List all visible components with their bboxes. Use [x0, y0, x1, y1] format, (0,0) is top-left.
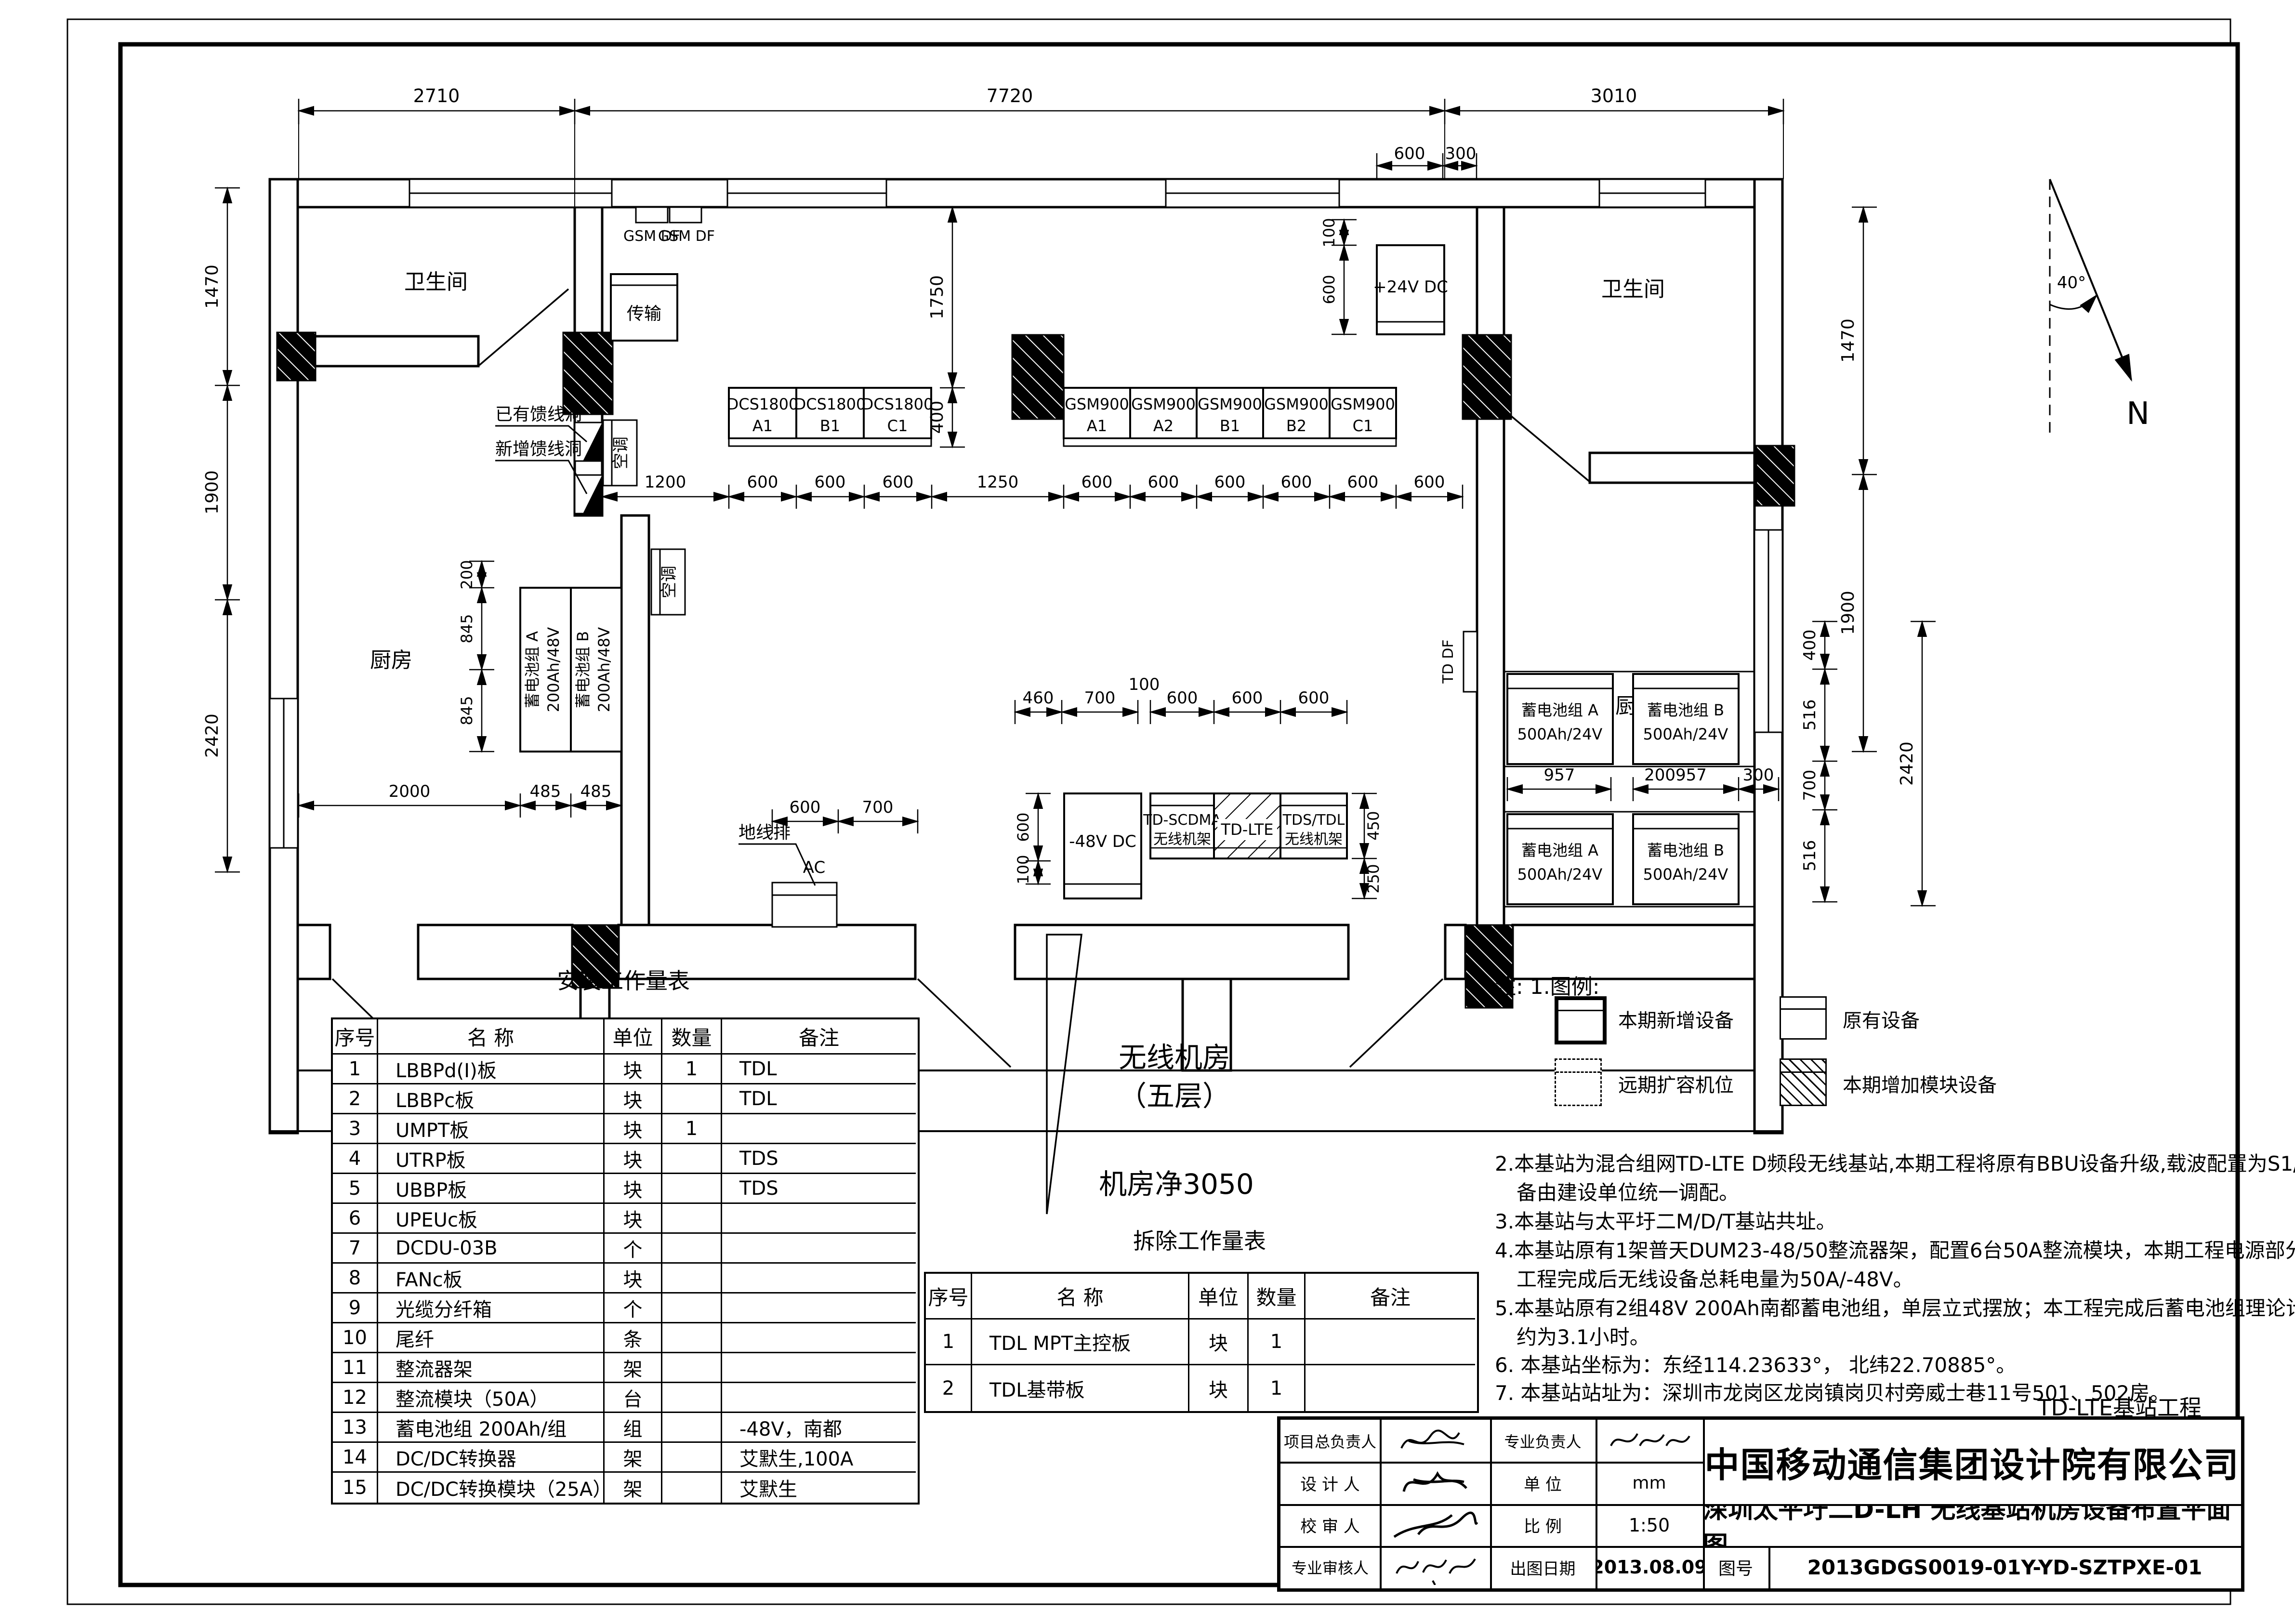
svg-text:600: 600 [1347, 473, 1379, 492]
cell [722, 1323, 916, 1353]
cell: 架 [605, 1443, 662, 1473]
install-table: 序号 名 称 单位 数量 备注 1LBBPd(I)板块1TDL 2LBBPc板块… [331, 1017, 920, 1505]
svg-text:516: 516 [1800, 840, 1820, 871]
cell: 1 [662, 1114, 722, 1144]
svg-text:600: 600 [815, 473, 846, 492]
svg-text:C1: C1 [1353, 417, 1373, 435]
svg-text:600: 600 [1320, 275, 1338, 304]
tb-value-figure-no: 2013GDGS0019-01Y-YD-SZTPXE-01 [1768, 1546, 2241, 1588]
svg-text:7720: 7720 [987, 85, 1033, 106]
svg-text:1470: 1470 [202, 264, 222, 309]
signature-discipline-lead [1596, 1420, 1703, 1462]
cell [662, 1383, 722, 1413]
svg-text:蓄电池组 B: 蓄电池组 B [1647, 841, 1724, 859]
svg-text:250: 250 [1364, 864, 1383, 893]
svg-text:1750: 1750 [927, 275, 947, 319]
svg-text:300: 300 [1743, 766, 1774, 785]
room-bath-right: 卫生间 [1601, 277, 1665, 302]
svg-text:3010: 3010 [1591, 85, 1637, 106]
svg-text:C1: C1 [887, 417, 908, 435]
removal-table: 序号 名 称 单位 数量 备注 1TDL MPT主控板块1 2TDL基带板块1 [924, 1272, 1479, 1413]
svg-text:500Ah/24V: 500Ah/24V [1517, 865, 1603, 884]
machine-room-name: 无线机房 [1119, 1041, 1230, 1074]
cell: 12 [333, 1383, 378, 1413]
rack-tdscdma-line2: 无线机架 [1153, 831, 1211, 848]
cell [662, 1204, 722, 1234]
rack-tdstdl-line2: 无线机架 [1285, 831, 1343, 848]
signature-designer [1380, 1462, 1490, 1504]
svg-text:B2: B2 [1286, 417, 1306, 435]
svg-text:600: 600 [1281, 473, 1312, 492]
drawing-sheet: 已有馈线洞 新增馈线洞 卫生间 厨房 卫生间 厨房 无线机房 （五层） 机房净3… [0, 0, 2295, 1622]
legend-label-future-expansion: 远期扩容机位 [1618, 1069, 1734, 1097]
svg-text:100: 100 [1129, 675, 1160, 694]
cell: 1 [662, 1055, 722, 1084]
svg-text:500Ah/24V: 500Ah/24V [1643, 725, 1728, 743]
svg-text:A1: A1 [1087, 417, 1107, 435]
svg-text:DCS1800: DCS1800 [727, 395, 799, 413]
cell [662, 1084, 722, 1114]
tb-label-figure-no: 图号 [1703, 1546, 1768, 1588]
cell [722, 1114, 916, 1144]
cell: 3 [333, 1114, 378, 1144]
svg-text:600: 600 [1082, 473, 1113, 492]
svg-text:600: 600 [1232, 688, 1263, 708]
svg-text:1470: 1470 [1838, 318, 1858, 363]
north-angle: 40° [2057, 273, 2086, 292]
cell [662, 1264, 722, 1294]
svg-text:1900: 1900 [1838, 591, 1858, 635]
cell [662, 1413, 722, 1443]
svg-text:600: 600 [1014, 812, 1032, 842]
svg-text:200Ah/48V: 200Ah/48V [544, 627, 563, 713]
cell: 艾默生 [722, 1473, 916, 1503]
cell: TDS [722, 1144, 916, 1174]
svg-text:DCS1800: DCS1800 [862, 395, 934, 413]
svg-text:蓄电池组 B: 蓄电池组 B [574, 631, 592, 708]
legend-label-new-equipment: 本期新增设备 [1618, 1005, 1734, 1033]
svg-text:485: 485 [580, 782, 612, 801]
cell: FANc板 [378, 1264, 605, 1294]
svg-text:460: 460 [1023, 688, 1054, 708]
cell: 9 [333, 1294, 378, 1323]
svg-text:600: 600 [1167, 688, 1198, 708]
gsm-df-label-2: GSM DF [658, 228, 715, 245]
ac-label-1: 空调 [611, 436, 631, 469]
cell: TDL [722, 1084, 916, 1114]
tb-label-discipline-lead: 专业负责人 [1490, 1420, 1596, 1462]
svg-text:450: 450 [1364, 811, 1383, 840]
svg-text:400: 400 [927, 401, 947, 434]
svg-text:600: 600 [1414, 473, 1445, 492]
cell [662, 1144, 722, 1174]
signature-project-lead [1380, 1420, 1490, 1462]
cell: 块 [605, 1264, 662, 1294]
cell: 个 [605, 1234, 662, 1264]
svg-text:485: 485 [530, 782, 561, 801]
cell: 块 [1189, 1365, 1249, 1411]
cell: UBBP板 [378, 1174, 605, 1204]
cell: 10 [333, 1323, 378, 1353]
svg-text:TD DF: TD DF [1440, 639, 1457, 684]
cell: 尾纤 [378, 1323, 605, 1353]
transmission-box: 传输 [611, 274, 677, 341]
cell: 1 [1249, 1320, 1306, 1365]
svg-text:2710: 2710 [413, 85, 460, 106]
cell: 块 [605, 1204, 662, 1234]
cell: -48V，南都 [722, 1413, 916, 1443]
install-header-name: 名 称 [378, 1019, 605, 1055]
svg-text:700: 700 [862, 798, 894, 817]
svg-text:957: 957 [1544, 766, 1575, 785]
svg-text:B1: B1 [820, 417, 840, 435]
svg-text:600: 600 [1214, 473, 1246, 492]
cell: 块 [1189, 1320, 1249, 1365]
ac-label-2: 空调 [659, 566, 679, 598]
svg-text:1200: 1200 [645, 473, 686, 492]
svg-text:1900: 1900 [202, 470, 222, 515]
cell: 8 [333, 1264, 378, 1294]
company-name: 中国移动通信集团设计院有限公司 [1703, 1420, 2241, 1504]
cell: 架 [605, 1473, 662, 1503]
svg-text:845: 845 [458, 696, 476, 725]
machine-room-net-size: 机房净3050 [1099, 1168, 1254, 1201]
svg-text:GSM900: GSM900 [1331, 395, 1395, 413]
cell: 架 [605, 1353, 662, 1383]
svg-text:2420: 2420 [1897, 741, 1917, 786]
cell: 蓄电池组 200Ah/组 [378, 1413, 605, 1443]
svg-text:蓄电池组 B: 蓄电池组 B [1647, 701, 1724, 719]
cell: 组 [605, 1413, 662, 1443]
rack-tdscdma-line1: TD-SCDMA [1143, 812, 1221, 829]
cell: TDL基带板 [972, 1365, 1189, 1411]
legend-label-added-module: 本期增加模块设备 [1843, 1069, 1997, 1097]
cell: 整流器架 [378, 1353, 605, 1383]
dc48-box: -48V DC [1064, 793, 1141, 898]
svg-text:300: 300 [1445, 144, 1477, 163]
svg-text:516: 516 [1800, 700, 1820, 731]
cell: TDL [722, 1055, 916, 1084]
rack-tdlte: TD-LTE [1221, 820, 1274, 839]
removal-header-seq: 序号 [926, 1274, 972, 1320]
svg-text:GSM900: GSM900 [1065, 395, 1129, 413]
dc24-box: +24V DC [1373, 245, 1448, 334]
legend-icon-future-expansion [1555, 1058, 1602, 1106]
new-feeder-hole-label: 新增馈线洞 [495, 439, 582, 459]
note-5-line2: 约为3.1小时。 [1517, 1321, 1650, 1350]
svg-text:500Ah/24V: 500Ah/24V [1643, 865, 1728, 884]
tb-label-scale: 比 例 [1490, 1504, 1596, 1546]
cell: 块 [605, 1084, 662, 1114]
cell: 块 [605, 1114, 662, 1144]
tb-value-unit: mm [1596, 1462, 1703, 1504]
svg-text:600: 600 [1298, 688, 1330, 708]
cell [662, 1174, 722, 1204]
svg-text:蓄电池组 A: 蓄电池组 A [523, 631, 541, 708]
tb-value-issue-date: 2013.08.09 [1596, 1546, 1703, 1588]
note-6: 6. 本基站坐标为：东经114.23633°， 北纬22.70885°。 [1495, 1349, 2016, 1378]
removal-table-title: 拆除工作量表 [924, 1224, 1475, 1255]
cell: DC/DC转换器 [378, 1443, 605, 1473]
svg-text:600: 600 [1394, 144, 1425, 163]
svg-text:1250: 1250 [977, 473, 1019, 492]
removal-header-unit: 单位 [1189, 1274, 1249, 1320]
cell: 1 [926, 1320, 972, 1365]
cell: 台 [605, 1383, 662, 1413]
cell: 11 [333, 1353, 378, 1383]
legend-icon-new-equipment [1555, 996, 1607, 1044]
svg-text:2000: 2000 [389, 782, 431, 801]
cell: 光缆分纤箱 [378, 1294, 605, 1323]
svg-text:GSM900: GSM900 [1264, 395, 1329, 413]
cell: UMPT板 [378, 1114, 605, 1144]
svg-text:DCS1800: DCS1800 [794, 395, 866, 413]
svg-text:500Ah/24V: 500Ah/24V [1517, 725, 1603, 743]
cell: 1 [333, 1055, 378, 1084]
cell [662, 1353, 722, 1383]
svg-text:845: 845 [458, 614, 476, 643]
cell: 块 [605, 1174, 662, 1204]
rack-tdstdl-line1: TDS/TDL [1282, 812, 1345, 829]
cell: TDL MPT主控板 [972, 1320, 1189, 1365]
drawing-title: 深圳太平圩二D-LH 无线基站机房设备布置平面图 [1703, 1504, 2241, 1546]
legend-heading: 注: 1.图例: [1495, 969, 1600, 1000]
cell: 4 [333, 1144, 378, 1174]
legend-icon-existing-equipment [1780, 996, 1827, 1040]
cell: 块 [605, 1144, 662, 1174]
cell [722, 1294, 916, 1323]
install-header-remark: 备注 [722, 1019, 916, 1055]
svg-text:600: 600 [1148, 473, 1179, 492]
north-label: N [2126, 396, 2150, 432]
cell: 2 [926, 1365, 972, 1411]
cell: 个 [605, 1294, 662, 1323]
note-4-line2: 工程完成后无线设备总耗电量为50A/-48V。 [1517, 1263, 1913, 1293]
svg-text:400: 400 [1800, 630, 1820, 661]
radio-racks: TD-SCDMA 无线机架 TD-LTE TDS/TDL 无线机架 [1143, 793, 1347, 858]
cell [722, 1264, 916, 1294]
cell [662, 1294, 722, 1323]
tb-label-project-lead: 项目总负责人 [1280, 1420, 1380, 1462]
cell [1306, 1320, 1475, 1365]
cell [662, 1473, 722, 1503]
cell [722, 1353, 916, 1383]
cell: 条 [605, 1323, 662, 1353]
cell: 15 [333, 1473, 378, 1503]
signature-checker [1380, 1504, 1490, 1546]
tb-label-unit: 单 位 [1490, 1462, 1596, 1504]
svg-text:GSM900: GSM900 [1198, 395, 1262, 413]
svg-text:100: 100 [1014, 855, 1032, 884]
svg-text:600: 600 [747, 473, 778, 492]
cell [1306, 1365, 1475, 1411]
svg-text:2420: 2420 [202, 713, 222, 758]
svg-text:蓄电池组 A: 蓄电池组 A [1521, 701, 1598, 719]
cell: 整流模块（50A） [378, 1383, 605, 1413]
install-header-unit: 单位 [605, 1019, 662, 1055]
svg-text:700: 700 [1800, 770, 1820, 801]
room-kitchen-left: 厨房 [370, 648, 412, 673]
cell [722, 1204, 916, 1234]
cell [662, 1234, 722, 1264]
removal-header-qty: 数量 [1249, 1274, 1306, 1320]
svg-text:+24V DC: +24V DC [1373, 277, 1448, 297]
note-2-line2: 备由建设单位统一调配。 [1517, 1176, 1739, 1206]
cell [722, 1234, 916, 1264]
cell: DC/DC转换模块（25A） [378, 1473, 605, 1503]
note-2-line1: 2.本基站为混合组网TD-LTE D频段无线基站,本期工程将原有BBU设备升级,… [1495, 1148, 2295, 1177]
machine-room-floor: （五层） [1119, 1080, 1230, 1112]
cell: 5 [333, 1174, 378, 1204]
svg-text:A1: A1 [752, 417, 773, 435]
svg-text:200957: 200957 [1644, 766, 1707, 785]
cell: 1 [1249, 1365, 1306, 1411]
svg-text:A2: A2 [1153, 417, 1174, 435]
cell: DCDU-03B [378, 1234, 605, 1264]
svg-text:100: 100 [1320, 218, 1338, 247]
svg-text:B1: B1 [1220, 417, 1240, 435]
cell: 块 [605, 1055, 662, 1084]
legend-label-existing-equipment: 原有设备 [1843, 1005, 1920, 1033]
removal-header-remark: 备注 [1306, 1274, 1475, 1320]
svg-text:GSM900: GSM900 [1131, 395, 1196, 413]
note-3: 3.本基站与太平圩二M/D/T基站共址。 [1495, 1205, 1836, 1235]
cell: 14 [333, 1443, 378, 1473]
tb-label-reviewer: 专业审核人 [1280, 1546, 1380, 1588]
cell: 2 [333, 1084, 378, 1114]
cell [722, 1383, 916, 1413]
install-table-title: 安装工作量表 [331, 964, 916, 995]
cell: 艾默生,100A [722, 1443, 916, 1473]
cell: UTRP板 [378, 1144, 605, 1174]
svg-text:700: 700 [1084, 688, 1116, 708]
tb-label-issue-date: 出图日期 [1490, 1546, 1596, 1588]
removal-header-name: 名 称 [972, 1274, 1189, 1320]
existing-feeder-hole-label: 已有馈线洞 [495, 405, 582, 424]
note-4-line1: 4.本基站原有1架普天DUM23-48/50整流器架，配置6台50A整流模块，本… [1495, 1234, 2295, 1264]
note-5-line1: 5.本基站原有2组48V 200Ah南都蓄电池组，单层立式摆放；本工程完成后蓄电… [1495, 1292, 2295, 1321]
tb-value-scale: 1:50 [1596, 1504, 1703, 1546]
cell: LBBPc板 [378, 1084, 605, 1114]
svg-text:传输: 传输 [627, 304, 661, 324]
legend-icon-added-module [1780, 1058, 1827, 1106]
cell [662, 1443, 722, 1473]
svg-text:蓄电池组 A: 蓄电池组 A [1521, 841, 1598, 859]
room-bath-left: 卫生间 [404, 270, 468, 294]
svg-text:200: 200 [458, 560, 476, 589]
install-header-seq: 序号 [333, 1019, 378, 1055]
cell: UPEUc板 [378, 1204, 605, 1234]
ground-bar-label: 地线排 [739, 823, 791, 843]
cell: LBBPd(I)板 [378, 1055, 605, 1084]
title-block: 项目总负责人 专业负责人 设 计 人 单 位 mm 校 审 人 比 例 1:50… [1277, 1416, 2244, 1592]
tb-label-designer: 设 计 人 [1280, 1462, 1380, 1504]
svg-text:200Ah/48V: 200Ah/48V [595, 627, 613, 713]
tb-label-checker: 校 审 人 [1280, 1504, 1380, 1546]
svg-text:-48V DC: -48V DC [1069, 832, 1136, 851]
cell: TDS [722, 1174, 916, 1204]
svg-text:600: 600 [790, 798, 821, 817]
cell [662, 1323, 722, 1353]
signature-reviewer [1380, 1546, 1490, 1588]
cell: 6 [333, 1204, 378, 1234]
install-header-qty: 数量 [662, 1019, 722, 1055]
svg-text:600: 600 [883, 473, 914, 492]
cell: 7 [333, 1234, 378, 1264]
cell: 13 [333, 1413, 378, 1443]
battery-left: 蓄电池组 A 200Ah/48V 蓄电池组 B 200Ah/48V [520, 588, 621, 752]
